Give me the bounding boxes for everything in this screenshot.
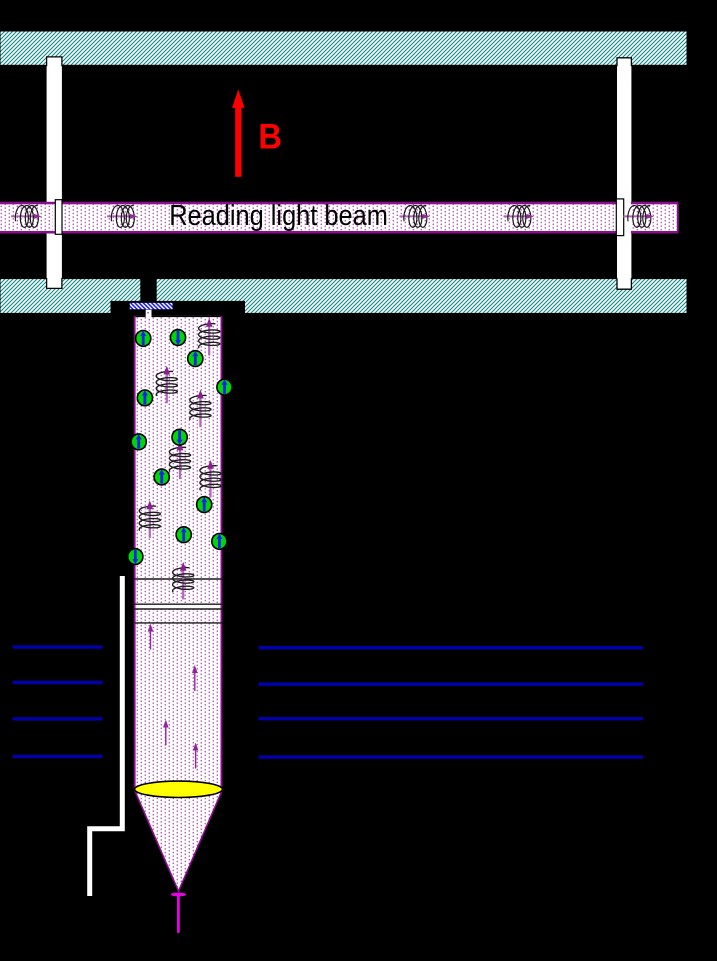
- svg-text:B: B: [258, 117, 282, 157]
- svg-text:Reading light beam: Reading light beam: [169, 200, 388, 232]
